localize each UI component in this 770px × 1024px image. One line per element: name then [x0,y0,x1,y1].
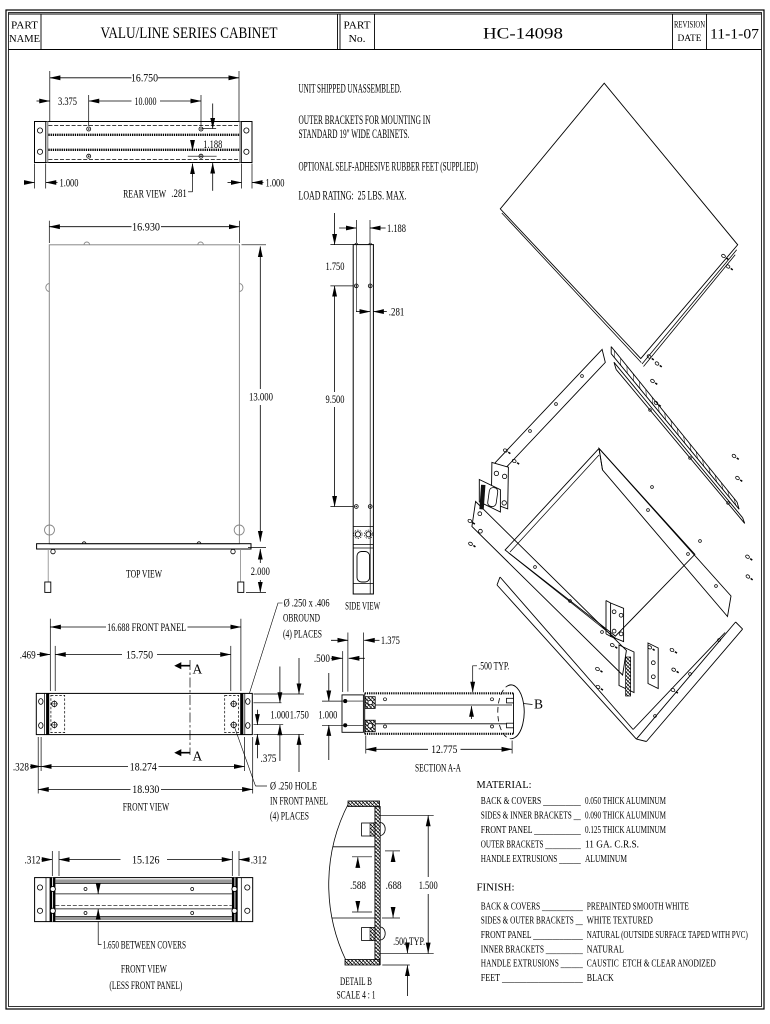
svg-text:NAME: NAME [9,34,40,45]
svg-text:HC-14098: HC-14098 [483,26,563,43]
svg-text:FRONT PANEL _____________: FRONT PANEL _____________ [481,929,583,941]
svg-text:Ø .250 HOLE: Ø .250 HOLE [270,779,317,793]
svg-text:FRONT VIEW: FRONT VIEW [121,963,167,975]
svg-text:FINISH:: FINISH: [477,882,515,894]
svg-text:.500 TYP.: .500 TYP. [393,934,425,948]
svg-text:OPTIONAL SELF-ADHESIVE RUBBER: OPTIONAL SELF-ADHESIVE RUBBER FEET (SUPP… [299,159,479,173]
svg-text:TOP VIEW: TOP VIEW [126,568,162,580]
svg-text:.281: .281 [171,186,187,200]
svg-text:SCALE 4 : 1: SCALE 4 : 1 [337,990,376,1002]
svg-text:PART: PART [11,21,39,32]
svg-text:13.000: 13.000 [249,390,273,404]
svg-text:BACK & COVERS ___________: BACK & COVERS ___________ [481,900,583,912]
svg-text:11-1-07: 11-1-07 [710,27,759,43]
svg-text:INNER BRACKETS __________: INNER BRACKETS __________ [481,943,583,955]
svg-text:.469: .469 [20,647,36,661]
svg-text:OUTER BRACKETS __________: OUTER BRACKETS __________ [481,839,581,851]
svg-text:B: B [534,697,543,712]
svg-text:A: A [193,662,203,677]
svg-text:NATURAL: NATURAL [587,943,624,955]
svg-text:SIDES & INNER BRACKETS __: SIDES & INNER BRACKETS __ [481,810,581,822]
svg-text:2.000: 2.000 [251,564,270,578]
svg-text:OUTER BRACKETS FOR MOUNTING IN: OUTER BRACKETS FOR MOUNTING IN [299,113,431,127]
svg-text:ALUMINUM: ALUMINUM [585,853,627,865]
svg-text:NATURAL (OUTSIDE SURFACE TAPED: NATURAL (OUTSIDE SURFACE TAPED WITH PVC) [587,929,748,941]
svg-text:1.650 BETWEEN COVERS: 1.650 BETWEEN COVERS [103,937,187,951]
svg-text:11 GA. C.R.S.: 11 GA. C.R.S. [585,839,639,851]
svg-text:HANDLE EXTRUSIONS ______: HANDLE EXTRUSIONS ______ [481,853,581,865]
svg-text:BLACK: BLACK [587,972,614,984]
svg-text:UNIT SHIPPED UNASSEMBLED.: UNIT SHIPPED UNASSEMBLED. [299,82,402,96]
svg-text:16.688 FRONT PANEL: 16.688 FRONT PANEL [107,620,186,634]
svg-text:0.125 THICK ALUMINUM: 0.125 THICK ALUMINUM [585,824,666,836]
svg-text:REAR VIEW: REAR VIEW [123,189,166,201]
svg-text:.688: .688 [386,878,402,892]
svg-text:16.930: 16.930 [132,220,160,234]
svg-text:.588: .588 [350,878,366,892]
svg-text:1.500: 1.500 [419,878,438,892]
svg-text:1.188: 1.188 [387,221,406,235]
svg-text:1.000: 1.000 [60,175,79,189]
svg-text:CAUSTIC ETCH & CLEAR ANODIZED: CAUSTIC ETCH & CLEAR ANODIZED [587,958,716,970]
svg-text:16.750: 16.750 [131,71,158,85]
svg-text:9.500: 9.500 [326,392,345,406]
svg-text:18.274: 18.274 [130,759,157,773]
svg-text:SIDES & OUTER BRACKETS __: SIDES & OUTER BRACKETS __ [481,915,583,927]
svg-text:.375: .375 [261,751,277,765]
svg-text:1.000: 1.000 [270,707,289,721]
svg-text:1.750: 1.750 [290,707,309,721]
svg-text:3.375: 3.375 [58,94,77,108]
svg-text:12.775: 12.775 [431,742,457,756]
svg-text:IN FRONT PANEL: IN FRONT PANEL [270,794,328,808]
svg-text:VALU/LINE SERIES CABINET: VALU/LINE SERIES CABINET [101,25,278,42]
svg-text:18.930: 18.930 [132,782,159,796]
svg-text:(4) PLACES: (4) PLACES [283,627,322,641]
svg-text:1.000: 1.000 [266,175,285,189]
svg-text:1.750: 1.750 [326,259,345,273]
svg-text:1.188: 1.188 [203,137,222,151]
svg-text:.500: .500 [314,651,330,665]
svg-text:OBROUND: OBROUND [283,611,320,625]
svg-text:FEET ____________________: FEET ____________________ [481,972,583,984]
svg-text:1.375: 1.375 [381,633,400,647]
svg-text:WHITE TEXTURED: WHITE TEXTURED [587,915,653,927]
svg-text:10.000: 10.000 [135,94,157,108]
svg-text:FRONT VIEW: FRONT VIEW [123,802,170,814]
svg-text:REVISION: REVISION [674,21,705,31]
svg-text:.281: .281 [389,304,405,318]
svg-text:(4) PLACES: (4) PLACES [270,809,309,823]
svg-text:15.750: 15.750 [126,647,153,661]
svg-text:PREPAINTED SMOOTH WHITE: PREPAINTED SMOOTH WHITE [587,900,689,912]
svg-text:A: A [193,749,203,764]
svg-text:HANDLE EXTRUSIONS ______: HANDLE EXTRUSIONS ______ [481,958,583,970]
svg-text:STANDARD 19" WIDE CABINETS.: STANDARD 19" WIDE CABINETS. [299,127,410,141]
svg-text:SECTION A-A: SECTION A-A [415,763,461,775]
svg-text:1.000: 1.000 [318,708,337,722]
svg-text:0.090 THICK ALUMINUM: 0.090 THICK ALUMINUM [585,810,666,822]
svg-text:0.050 THICK ALUMINUM: 0.050 THICK ALUMINUM [585,795,666,807]
svg-text:MATERIAL:: MATERIAL: [477,779,532,791]
svg-text:SIDE VIEW: SIDE VIEW [345,601,380,613]
svg-text:.500 TYP.: .500 TYP. [478,658,509,672]
svg-text:LOAD RATING: 25 LBS. MAX.: LOAD RATING: 25 LBS. MAX. [299,188,407,202]
svg-text:.312: .312 [251,852,267,866]
svg-text:No.: No. [349,34,366,45]
svg-text:DATE: DATE [678,34,702,44]
svg-text:PART: PART [344,21,372,32]
svg-text:BACK & COVERS __________: BACK & COVERS __________ [481,795,581,807]
svg-text:.312: .312 [25,852,41,866]
svg-text:(LESS FRONT PANEL): (LESS FRONT PANEL) [109,980,182,992]
svg-text:.328: .328 [13,759,29,773]
svg-text:DETAIL B: DETAIL B [340,976,372,988]
svg-text:Ø .250 x .406: Ø .250 x .406 [284,596,330,610]
svg-text:15.126: 15.126 [132,852,160,866]
svg-text:FRONT PANEL ____________: FRONT PANEL ____________ [481,824,581,836]
